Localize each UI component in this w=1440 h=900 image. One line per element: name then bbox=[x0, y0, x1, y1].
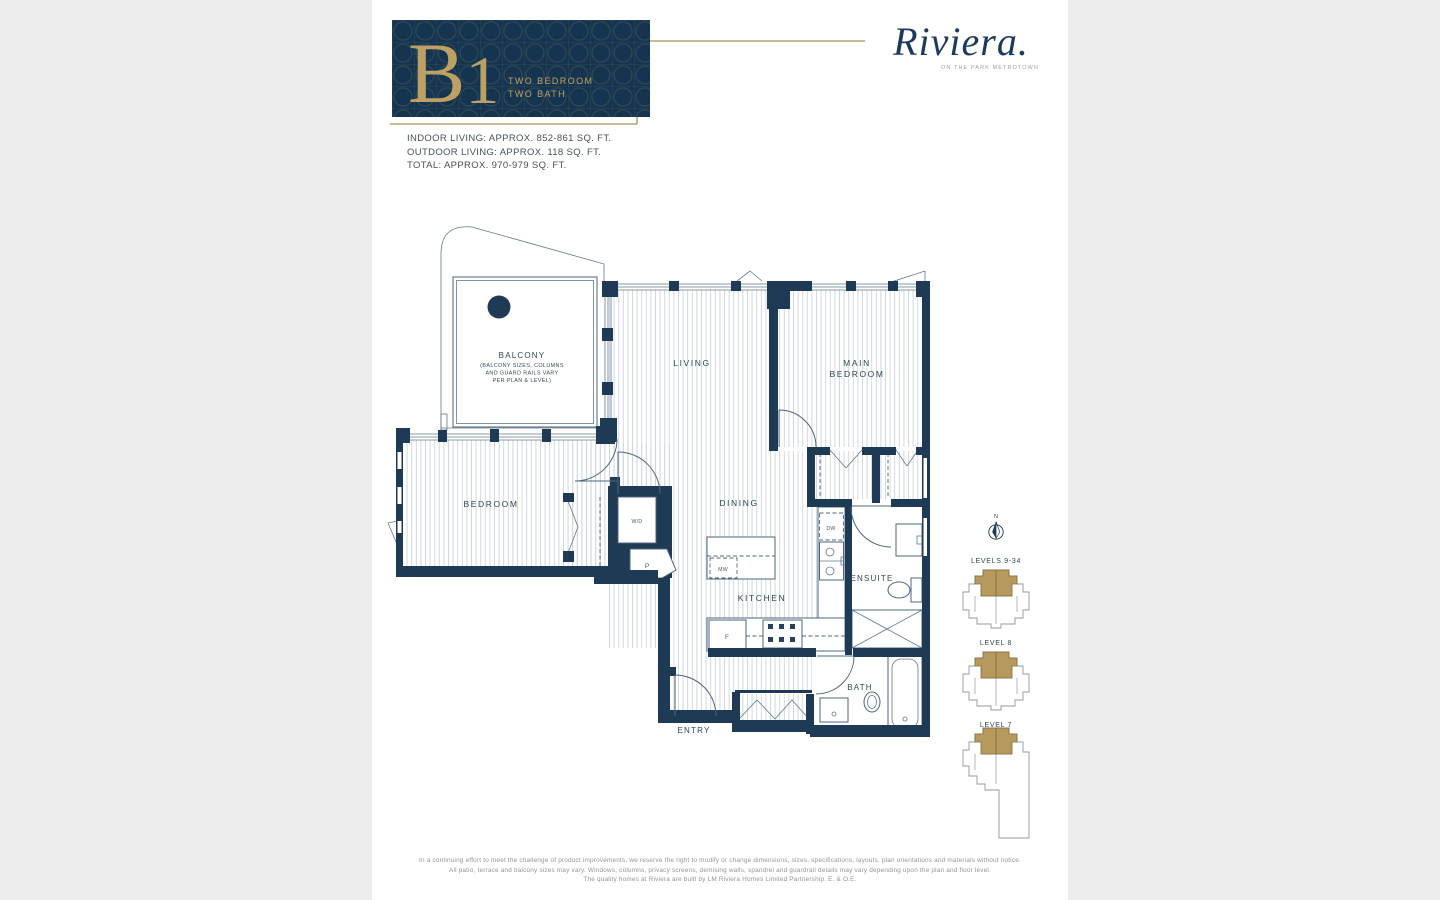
fixture-label-pantry: P bbox=[645, 563, 649, 570]
fixture-label-washer-dryer: W/D bbox=[632, 519, 643, 525]
balcony-note-3: PER PLAN & LEVEL) bbox=[493, 378, 552, 384]
plan-sheet: B1 TWO BEDROOM TWO BATH Riviera. ON THE … bbox=[372, 0, 1068, 900]
room-label-balcony: BALCONY bbox=[499, 351, 546, 360]
floorplan-drawing: LIVING MAIN BEDROOM BEDROOM DINING KITCH… bbox=[385, 210, 945, 750]
room-label-main-bedroom-2: BEDROOM bbox=[829, 369, 884, 379]
area-stats: INDOOR LIVING: APPROX. 852-861 SQ. FT. O… bbox=[407, 132, 611, 173]
total-area-stat: TOTAL: APPROX. 970-979 SQ. FT. bbox=[407, 159, 611, 173]
room-label-ensuite: ENSUITE bbox=[850, 574, 893, 583]
balcony-outline bbox=[441, 227, 604, 430]
keyplan-level-8 bbox=[963, 652, 1029, 710]
keyplan-column: N LEVELS 9-34 LEVEL 8 LEVEL 7 bbox=[950, 508, 1042, 853]
plan-code-card: B1 TWO BEDROOM TWO BATH bbox=[392, 20, 650, 117]
fixture-label-microwave: MW bbox=[718, 567, 728, 573]
plan-type-line2: TWO BATH bbox=[508, 88, 593, 101]
plan-code-number: 1 bbox=[465, 47, 499, 114]
disclaimer: In a continuing effort to meet the chall… bbox=[412, 856, 1028, 885]
balcony-note-2: AND GUARD RAILS VARY bbox=[485, 371, 558, 377]
balcony-column bbox=[488, 296, 511, 319]
keyplan-levels-9-34 bbox=[963, 570, 1029, 628]
room-label-bedroom: BEDROOM bbox=[463, 499, 518, 509]
keyplan-level-7 bbox=[963, 728, 1029, 838]
fixture-label-fridge: F bbox=[725, 634, 729, 641]
disclaimer-line2: All patio, terrace and balcony sizes may… bbox=[412, 866, 1028, 876]
keyplan-label-level-8: LEVEL 8 bbox=[980, 640, 1012, 647]
indoor-living-stat: INDOOR LIVING: APPROX. 852-861 SQ. FT. bbox=[407, 132, 611, 146]
outdoor-living-stat: OUTDOOR LIVING: APPROX. 118 SQ. FT. bbox=[407, 146, 611, 160]
brand-logo: Riviera. ON THE PARK METROTOWN bbox=[877, 20, 1045, 71]
room-label-living: LIVING bbox=[673, 358, 710, 368]
disclaimer-line3: The quality homes at Riviera are built b… bbox=[412, 875, 1028, 885]
fixture-label-dishwasher: DW bbox=[826, 526, 835, 532]
room-label-bath: BATH bbox=[847, 683, 873, 692]
disclaimer-line1: In a continuing effort to meet the chall… bbox=[412, 856, 1028, 866]
svg-text:N: N bbox=[994, 514, 998, 520]
room-label-entry: ENTRY bbox=[678, 726, 711, 735]
plan-code-letter: B bbox=[408, 34, 465, 114]
plan-type: TWO BEDROOM TWO BATH bbox=[508, 75, 593, 101]
plan-type-line1: TWO BEDROOM bbox=[508, 75, 593, 88]
room-label-kitchen: KITCHEN bbox=[738, 593, 787, 603]
room-label-dining: DINING bbox=[719, 498, 758, 508]
brand-name: Riviera. bbox=[877, 20, 1045, 64]
keyplan-label-levels-9-34: LEVELS 9-34 bbox=[971, 558, 1021, 565]
brand-tagline: ON THE PARK METROTOWN bbox=[877, 65, 1045, 71]
balcony-note-1: (BALCONY SIZES, COLUMNS bbox=[480, 363, 564, 369]
compass-icon: N bbox=[989, 514, 1003, 539]
plan-code: B1 bbox=[408, 22, 499, 114]
room-label-main-bedroom-1: MAIN bbox=[843, 358, 871, 368]
laundry-closet bbox=[608, 486, 676, 578]
